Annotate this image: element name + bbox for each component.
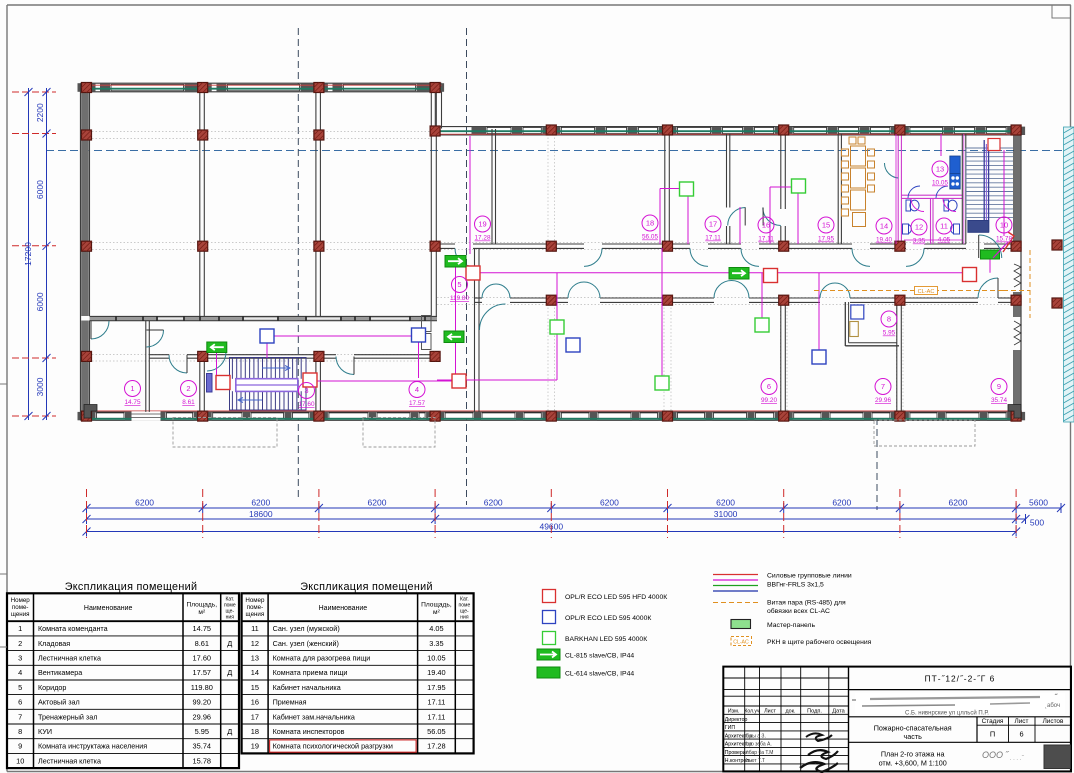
svg-text:9: 9 — [997, 382, 1001, 391]
svg-text:17: 17 — [709, 220, 717, 229]
svg-text:док.: док. — [786, 709, 796, 715]
svg-text:Приемная: Приемная — [273, 698, 307, 707]
svg-text:Силовые групповые линии: Силовые групповые линии — [767, 573, 852, 580]
svg-text:1: 1 — [130, 384, 134, 393]
svg-text:7: 7 — [881, 382, 885, 391]
svg-text:19.40: 19.40 — [876, 237, 892, 244]
svg-text:17.60: 17.60 — [299, 401, 315, 408]
svg-text:Дата: Дата — [832, 709, 845, 715]
svg-text:. . . .˝: . . . .˝ — [1010, 756, 1025, 762]
svg-text:Витая пара (RS-485) для: Витая пара (RS-485) для — [767, 600, 846, 607]
svg-text:6200: 6200 — [368, 498, 387, 508]
svg-text:17.11: 17.11 — [758, 236, 774, 243]
svg-text:16: 16 — [762, 221, 770, 230]
svg-text:18600: 18600 — [249, 509, 273, 519]
svg-text:ВВГнг-FRLS 3х1,5: ВВГнг-FRLS 3х1,5 — [767, 582, 824, 589]
svg-text:3: 3 — [18, 654, 22, 663]
svg-text:Изм.: Изм. — [728, 709, 740, 715]
svg-text:ПТ-˝12/˝-2-˝Г 6: ПТ-˝12/˝-2-˝Г 6 — [925, 674, 996, 684]
svg-text:м²: м² — [198, 609, 206, 616]
svg-text:5: 5 — [457, 280, 461, 289]
svg-text:щения: щения — [246, 611, 265, 618]
svg-text:CL-815 slave/СВ, IP44: CL-815 slave/СВ, IP44 — [565, 653, 634, 660]
svg-text:5: 5 — [18, 683, 22, 692]
svg-text:1: 1 — [18, 624, 22, 633]
svg-text:99.20: 99.20 — [761, 397, 777, 404]
svg-text:План 2-го этажа на: План 2-го этажа на — [881, 750, 945, 759]
svg-text:часть: часть — [904, 732, 923, 741]
svg-text:18: 18 — [646, 219, 654, 228]
svg-text:6200: 6200 — [832, 498, 851, 508]
svg-text:Номер: Номер — [11, 597, 31, 604]
svg-text:6: 6 — [18, 698, 22, 707]
svg-text:5600: 5600 — [1029, 498, 1048, 508]
svg-text:6200: 6200 — [600, 498, 619, 508]
svg-text:Коридор: Коридор — [38, 683, 66, 692]
svg-text:6: 6 — [1019, 730, 1023, 739]
svg-text:10.05: 10.05 — [932, 180, 948, 187]
svg-text:/ бар ба Т.М: / бар ба Т.М — [746, 750, 773, 756]
svg-text:17.11: 17.11 — [705, 235, 721, 242]
svg-text:119.80: 119.80 — [450, 295, 470, 302]
svg-text:10: 10 — [1000, 221, 1008, 230]
svg-text:17.28: 17.28 — [427, 742, 446, 751]
svg-text:щения: щения — [11, 611, 30, 618]
svg-text:15.78: 15.78 — [193, 756, 212, 765]
svg-text:С.Б. нивнрские ул цлльсй П: С.Б. нивнрские ул цлльсй П.Р. — [905, 710, 989, 717]
svg-text:35.74: 35.74 — [991, 397, 1007, 404]
svg-text:8: 8 — [18, 727, 22, 736]
svg-text:99.20: 99.20 — [193, 698, 212, 707]
svg-text:4: 4 — [415, 385, 419, 394]
svg-text:10: 10 — [16, 756, 24, 765]
svg-text:поме-: поме- — [247, 604, 264, 611]
svg-text:м²: м² — [433, 609, 441, 616]
svg-text:Кол.уч: Кол.уч — [745, 709, 760, 715]
svg-text:6200: 6200 — [484, 498, 503, 508]
svg-text:ООО ˝: ООО ˝ — [982, 750, 1010, 760]
svg-text:18: 18 — [251, 727, 259, 736]
svg-text:19: 19 — [251, 742, 259, 751]
svg-text:17.11: 17.11 — [427, 712, 445, 721]
svg-text:Г кы а З.: Г кы а З. — [746, 733, 766, 739]
svg-text:Лист: Лист — [1015, 718, 1029, 725]
svg-text:14: 14 — [251, 668, 259, 677]
svg-text:КУИ: КУИ — [38, 727, 52, 736]
svg-text:6200: 6200 — [251, 498, 270, 508]
svg-text:CL-AC: CL-AC — [733, 639, 749, 645]
svg-text:56.05: 56.05 — [427, 727, 446, 736]
svg-text:11: 11 — [940, 222, 948, 231]
svg-text:3000: 3000 — [35, 377, 45, 396]
svg-text:3.35: 3.35 — [429, 639, 443, 648]
svg-text:Экспликация помещений: Экспликация помещений — [65, 581, 198, 593]
svg-text:5.95: 5.95 — [883, 330, 896, 337]
svg-text:56.05: 56.05 — [642, 234, 658, 241]
svg-text:4.05: 4.05 — [938, 237, 951, 244]
svg-text:500: 500 — [1030, 518, 1044, 528]
svg-text:Кабинет начальника: Кабинет начальника — [273, 683, 341, 692]
svg-text:12: 12 — [251, 639, 259, 648]
svg-text:Лестничная клетка: Лестничная клетка — [38, 756, 101, 765]
svg-text:РКН в щите рабочего освещения: РКН в щите рабочего освещения — [767, 638, 872, 646]
svg-text:Сан. узел (мужской): Сан. узел (мужской) — [273, 624, 340, 633]
svg-text:9: 9 — [18, 742, 22, 751]
svg-text:17.57: 17.57 — [409, 400, 425, 407]
svg-text:17.95: 17.95 — [818, 236, 834, 243]
svg-text:CL-AC: CL-AC — [918, 289, 935, 295]
svg-text:17.28: 17.28 — [475, 235, 491, 242]
svg-text:5.95: 5.95 — [195, 727, 209, 736]
svg-text:CL-614 slave/СВ, IP44: CL-614 slave/СВ, IP44 — [565, 671, 634, 678]
svg-text:Лестничная клетка: Лестничная клетка — [38, 654, 101, 663]
svg-text:17: 17 — [251, 712, 259, 721]
svg-text:Комната коменданта: Комната коменданта — [38, 624, 108, 633]
svg-text:Комната для разогрева пищи: Комната для разогрева пищи — [273, 654, 371, 663]
svg-text:8: 8 — [887, 315, 891, 324]
svg-text:Кабинет зам.начальника: Кабинет зам.начальника — [273, 712, 355, 721]
svg-text:Стадия: Стадия — [982, 718, 1004, 725]
svg-text:Комната инспекторов: Комната инспекторов — [273, 727, 345, 736]
svg-text:Площадь,: Площадь, — [187, 601, 218, 608]
svg-text:10.05: 10.05 — [427, 654, 446, 663]
svg-text:Вентикамера: Вентикамера — [38, 668, 82, 677]
svg-text:3.35: 3.35 — [913, 238, 926, 245]
svg-text:отм. +3,600, М 1:100: отм. +3,600, М 1:100 — [879, 759, 947, 768]
svg-text:17.11: 17.11 — [427, 698, 445, 707]
svg-text:19: 19 — [478, 220, 486, 229]
svg-text:Лист: Лист — [764, 709, 776, 715]
svg-text:П: П — [990, 730, 995, 739]
svg-text:29.96: 29.96 — [875, 397, 891, 404]
svg-text:OPL/R ECO LED 595 4000К: OPL/R ECO LED 595 4000К — [565, 615, 651, 622]
svg-text:Подп.: Подп. — [807, 709, 822, 715]
svg-text:17200: 17200 — [23, 242, 33, 266]
svg-text:119.80: 119.80 — [191, 683, 213, 692]
svg-text:8.61: 8.61 — [195, 639, 209, 648]
svg-text:17.95: 17.95 — [427, 683, 446, 692]
svg-text:29.96: 29.96 — [193, 712, 212, 721]
svg-text:31000: 31000 — [714, 509, 738, 519]
svg-text:15.78: 15.78 — [996, 236, 1012, 243]
svg-text:2: 2 — [186, 384, 190, 393]
svg-text:Актовый зал: Актовый зал — [38, 698, 80, 707]
svg-text:14: 14 — [880, 222, 888, 231]
svg-text:Д: Д — [227, 727, 232, 736]
svg-text:17.57: 17.57 — [193, 668, 212, 677]
svg-text:6000: 6000 — [35, 292, 45, 311]
svg-text:Комната инструктажа населения: Комната инструктажа населения — [38, 742, 147, 751]
svg-text:6200: 6200 — [716, 498, 735, 508]
svg-text:Директор: Директор — [725, 717, 748, 723]
svg-text:6200: 6200 — [949, 498, 968, 508]
svg-text:Сан. узел (женский): Сан. узел (женский) — [273, 639, 339, 648]
svg-text:Комната приема пищи: Комната приема пищи — [273, 668, 348, 677]
svg-text:14.75: 14.75 — [125, 399, 141, 406]
svg-text:BARKHAN LED 595 4000К: BARKHAN LED 595 4000К — [565, 636, 647, 643]
svg-text:Номер: Номер — [245, 597, 265, 604]
svg-text:Экспликация помещений: Экспликация помещений — [300, 581, 433, 593]
svg-text:OPL/R ECO LED 595 HFD 4000К: OPL/R ECO LED 595 HFD 4000К — [565, 594, 667, 601]
svg-text:13: 13 — [936, 165, 944, 174]
svg-text:Мастер-панель: Мастер-панель — [767, 622, 816, 629]
svg-text:6200: 6200 — [135, 498, 154, 508]
svg-text:4: 4 — [18, 668, 22, 677]
svg-text:49600: 49600 — [539, 522, 563, 532]
svg-text:6: 6 — [767, 382, 771, 391]
svg-text:Ь ют Т.Т: Ь ют Т.Т — [746, 758, 765, 764]
svg-text:Комната психологической разгру: Комната психологической разгрузки — [273, 742, 393, 751]
svg-text:Кладовая: Кладовая — [38, 639, 70, 648]
svg-text:Наименование: Наименование — [319, 605, 368, 612]
svg-text:ния: ния — [226, 614, 235, 620]
svg-text:8.61: 8.61 — [182, 399, 195, 406]
svg-text:15: 15 — [251, 683, 259, 692]
svg-text:Д: Д — [227, 639, 232, 648]
svg-text:19.40: 19.40 — [427, 668, 446, 677]
svg-text:2200: 2200 — [35, 103, 45, 122]
svg-text:ГИП: ГИП — [725, 725, 736, 731]
svg-text:11: 11 — [251, 624, 259, 633]
svg-text:˛абоч: ˛абоч — [1045, 703, 1060, 709]
svg-text:14.75: 14.75 — [193, 624, 212, 633]
svg-text:17.60: 17.60 — [193, 654, 212, 663]
svg-text:Листов: Листов — [1043, 718, 1064, 725]
svg-text:13: 13 — [251, 654, 259, 663]
svg-text:L ю зеба А.: L ю зеба А. — [746, 742, 772, 748]
svg-text:обвязки всех CL-AC: обвязки всех CL-AC — [767, 607, 830, 615]
svg-text:16: 16 — [251, 698, 259, 707]
svg-text:12: 12 — [915, 223, 923, 232]
svg-text:поме-: поме- — [12, 604, 29, 611]
svg-text:Площадь,: Площадь, — [421, 601, 452, 608]
svg-text:4.05: 4.05 — [429, 624, 443, 633]
svg-text:3: 3 — [304, 386, 308, 395]
svg-text:Тренажерный зал: Тренажерный зал — [38, 712, 97, 721]
svg-text:6000: 6000 — [35, 180, 45, 199]
svg-text:2: 2 — [18, 639, 22, 648]
svg-text:ния: ния — [460, 614, 469, 620]
svg-text:7: 7 — [18, 712, 22, 721]
svg-text:Д: Д — [227, 668, 232, 677]
svg-text:35.74: 35.74 — [193, 742, 212, 751]
svg-text:Наименование: Наименование — [84, 605, 133, 612]
svg-text:15: 15 — [822, 221, 830, 230]
